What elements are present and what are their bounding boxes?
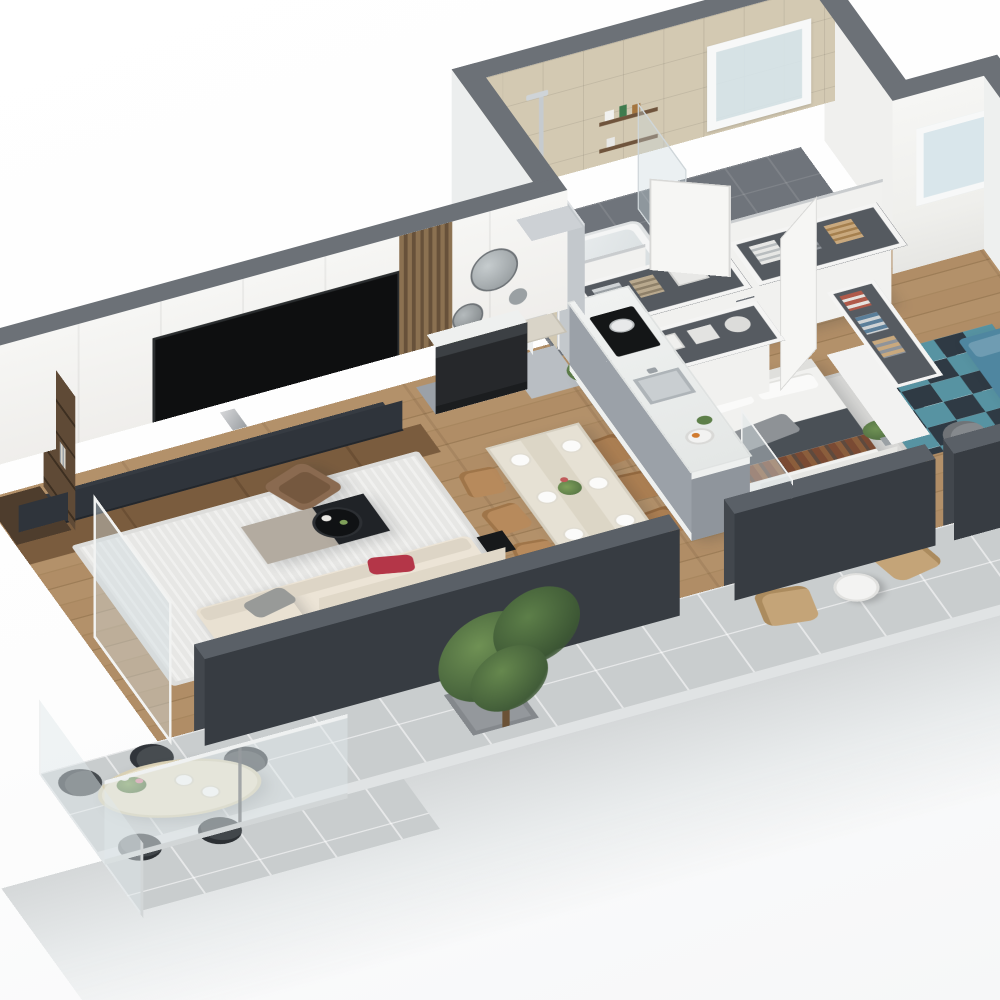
shower-head-icon	[526, 90, 548, 102]
faucet-icon	[646, 367, 658, 374]
hanging-clothes-icon	[855, 312, 889, 335]
round-mirror-tiny-icon	[509, 286, 527, 307]
hanging-clothes-icon	[872, 336, 906, 359]
herbs-icon	[694, 414, 714, 426]
round-basket-icon	[720, 314, 754, 335]
bathroom-window	[707, 18, 811, 132]
floorplan-stage	[0, 0, 1000, 1000]
storage-box-icon	[687, 324, 721, 344]
folded-clothes-icon	[824, 219, 864, 245]
hanging-clothes-icon	[839, 291, 872, 312]
round-mirror-large-icon	[471, 243, 519, 297]
place-setting-icon	[584, 474, 613, 492]
tray-flowers-icon	[320, 514, 333, 522]
bed2-back-wall-face	[893, 69, 1000, 274]
toiletry-bottles-icon	[619, 104, 626, 117]
place-setting-icon	[557, 437, 586, 455]
tv-screen	[153, 271, 401, 432]
sink-icon	[633, 367, 697, 404]
folded-clothes-icon	[629, 274, 665, 297]
book-spines-icon	[60, 441, 66, 469]
tray-fruit-icon	[338, 519, 349, 526]
